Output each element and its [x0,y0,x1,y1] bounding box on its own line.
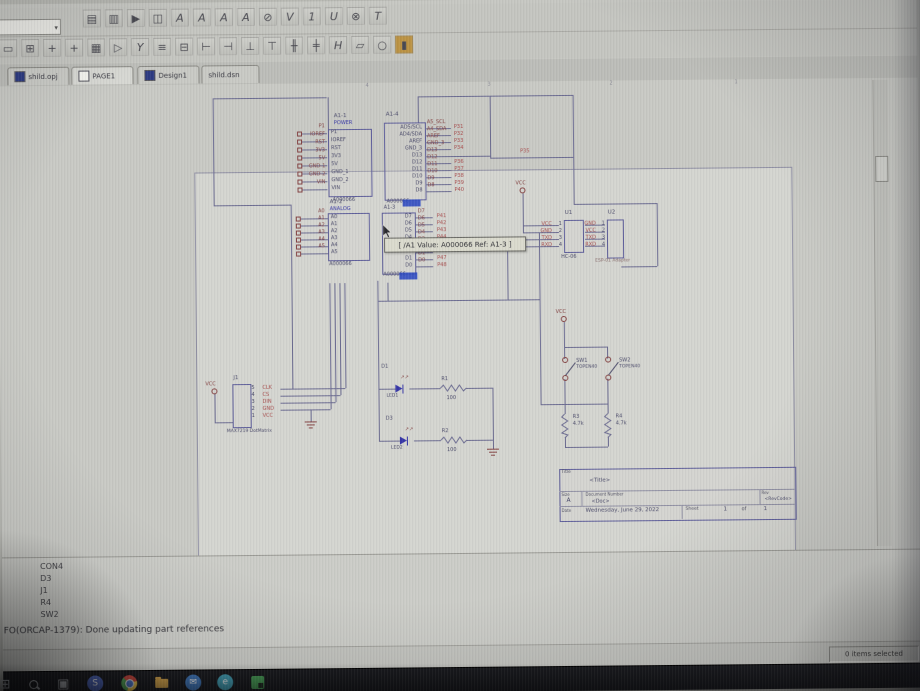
selection-status: 0 items selected [829,646,919,663]
teams-icon[interactable]: S [87,675,103,691]
capture-corner [258,682,263,687]
cross-reference-icon[interactable]: 1 [303,7,321,25]
session-log-item[interactable]: CON4 [40,563,63,572]
place-rectangle-icon[interactable]: H [329,36,347,54]
tab-shild-opj[interactable]: shild.opj [7,67,69,86]
place-wire-icon[interactable]: + [43,39,61,57]
select-icon[interactable]: ▭ [0,39,17,57]
place-arc-icon[interactable]: ○ [373,36,391,54]
screen-photo: ▾ ▤▥▶◫AAAA⊘V1U⊗T ▭⊞++▦▷Y≡⊟⊢⊣⊥⊤╫╪H▱○▮ shi… [0,0,920,691]
search-glass [29,680,38,689]
edge-icon[interactable]: e [217,674,233,690]
no-drc-icon[interactable]: ⊘ [259,8,277,26]
tab-label: PAGE1 [92,72,115,80]
place-power-icon[interactable]: Y [131,38,149,56]
update-properties-icon[interactable]: A [215,8,233,26]
tab-label: shild.dsn [208,71,239,79]
tab-design1[interactable]: Design1 [137,65,199,84]
search-handle [36,685,40,689]
drc-icon[interactable]: A [237,8,255,26]
task-view-icon[interactable]: ▣ [55,676,71,691]
monitor-screen: ▾ ▤▥▶◫AAAA⊘V1U⊗T ▭⊞++▦▷Y≡⊟⊢⊣⊥⊤╫╪H▱○▮ shi… [0,0,920,691]
hierarchical-pin-icon[interactable]: ⊣ [219,37,237,55]
backannotate-icon[interactable]: A [193,8,211,26]
snap-grid-icon[interactable]: ⊗ [347,7,365,25]
chevron-down-icon: ▾ [54,24,58,32]
place-bus-icon[interactable]: + [65,39,83,57]
hierarchical-port-icon[interactable]: ⊢ [197,37,215,55]
mail-icon[interactable]: ✉ [185,674,201,690]
capture-icon[interactable] [249,674,265,690]
place-junction-icon[interactable]: ▦ [87,38,105,56]
session-log-item[interactable]: R4 [40,599,51,607]
tab-label: Design1 [158,71,187,79]
window-icon[interactable]: ◫ [149,9,167,27]
files-icon[interactable] [153,675,169,691]
hierarchical-block-icon[interactable]: ⊟ [175,38,193,56]
session-log-item[interactable]: SW2 [41,611,59,620]
off-page-connector-icon[interactable]: ⊥ [241,37,259,55]
new-icon[interactable]: ▤ [83,9,101,27]
folder-shape [155,678,168,687]
folder-tab [155,676,161,678]
netlist-icon[interactable]: V [281,8,299,26]
chrome-center [125,679,134,688]
page-icon [78,71,89,82]
design-icon [144,70,155,81]
place-polyline-icon[interactable]: ╪ [307,36,325,54]
place-line-icon[interactable]: ╫ [285,36,303,54]
start-icon[interactable]: ⊞ [0,676,13,691]
status-log: FO(ORCAP-1379): Done updating part refer… [4,625,224,637]
project-icon [14,71,25,82]
zoom-combobox[interactable]: ▾ [0,19,61,36]
project-manager-icon[interactable]: T [369,7,387,25]
open-icon[interactable]: ▥ [105,9,123,27]
search-icon[interactable] [25,676,41,691]
vertical-scrollbar[interactable] [872,80,891,546]
scrollbar-thumb[interactable] [875,156,888,182]
session-log-panel: CON4D3J1R4SW2 FO(ORCAP-1379): Done updat… [2,549,920,651]
run-icon[interactable]: ▶ [127,9,145,27]
session-log-item[interactable]: D3 [40,575,51,583]
place-ellipse-icon[interactable]: ▱ [351,36,369,54]
tab-shild-dsn[interactable]: shild.dsn [201,65,259,84]
annotate-icon[interactable]: A [171,9,189,27]
bom-icon[interactable]: U [325,7,343,25]
place-part-icon[interactable]: ⊞ [21,39,39,57]
place-text-icon[interactable]: ▮ [395,35,413,53]
tab-label: shild.opj [28,72,57,80]
no-connect-icon[interactable]: ⊤ [263,37,281,55]
chrome-icon[interactable] [121,675,137,691]
place-net-alias-icon[interactable]: ▷ [109,38,127,56]
schematic-canvas[interactable] [0,78,920,558]
capture-shape [251,675,264,688]
schematic-page[interactable] [194,167,796,609]
session-log-item[interactable]: J1 [40,587,48,595]
place-ground-icon[interactable]: ≡ [153,38,171,56]
orcad-capture-window: ▾ ▤▥▶◫AAAA⊘V1U⊗T ▭⊞++▦▷Y≡⊟⊢⊣⊥⊤╫╪H▱○▮ shi… [0,0,920,691]
tab-page1[interactable]: PAGE1 [71,66,133,85]
